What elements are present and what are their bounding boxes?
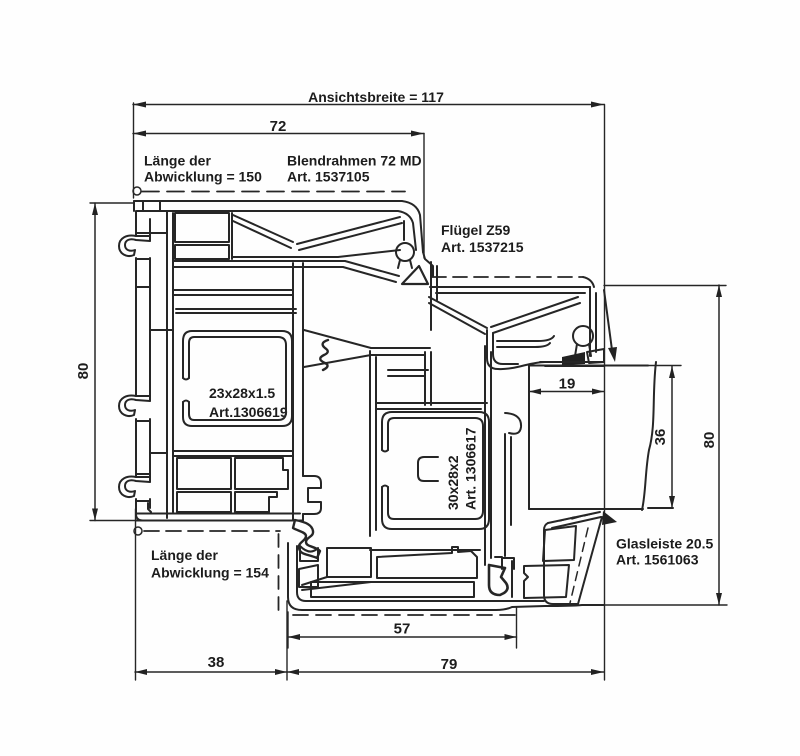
svg-text:57: 57 [394, 621, 411, 638]
svg-text:Art. 1561063: Art. 1561063 [616, 552, 699, 568]
svg-text:Länge der: Länge der [151, 547, 218, 563]
svg-text:Blendrahmen 72 MD: Blendrahmen 72 MD [287, 153, 422, 169]
svg-text:Abwicklung = 154: Abwicklung = 154 [151, 565, 269, 581]
svg-text:Länge der: Länge der [144, 153, 211, 169]
svg-text:Art. 1537215: Art. 1537215 [441, 239, 524, 255]
svg-text:23x28x1.5: 23x28x1.5 [209, 385, 275, 401]
svg-text:36: 36 [652, 429, 669, 446]
svg-text:38: 38 [208, 654, 225, 671]
svg-text:Flügel Z59: Flügel Z59 [441, 222, 510, 238]
svg-text:Abwicklung = 150: Abwicklung = 150 [144, 169, 262, 185]
svg-text:79: 79 [441, 656, 458, 673]
svg-text:Art. 1306617: Art. 1306617 [463, 427, 479, 510]
svg-text:72: 72 [270, 118, 287, 135]
svg-text:Ansichtsbreite = 117: Ansichtsbreite = 117 [308, 89, 444, 105]
svg-text:Art.1306619: Art.1306619 [209, 404, 288, 420]
svg-text:Art. 1537105: Art. 1537105 [287, 169, 370, 185]
svg-text:80: 80 [75, 363, 92, 380]
svg-text:30x28x2: 30x28x2 [445, 455, 461, 510]
svg-text:Glasleiste 20.5: Glasleiste 20.5 [616, 536, 714, 552]
svg-text:80: 80 [701, 432, 718, 449]
svg-text:19: 19 [559, 376, 576, 393]
